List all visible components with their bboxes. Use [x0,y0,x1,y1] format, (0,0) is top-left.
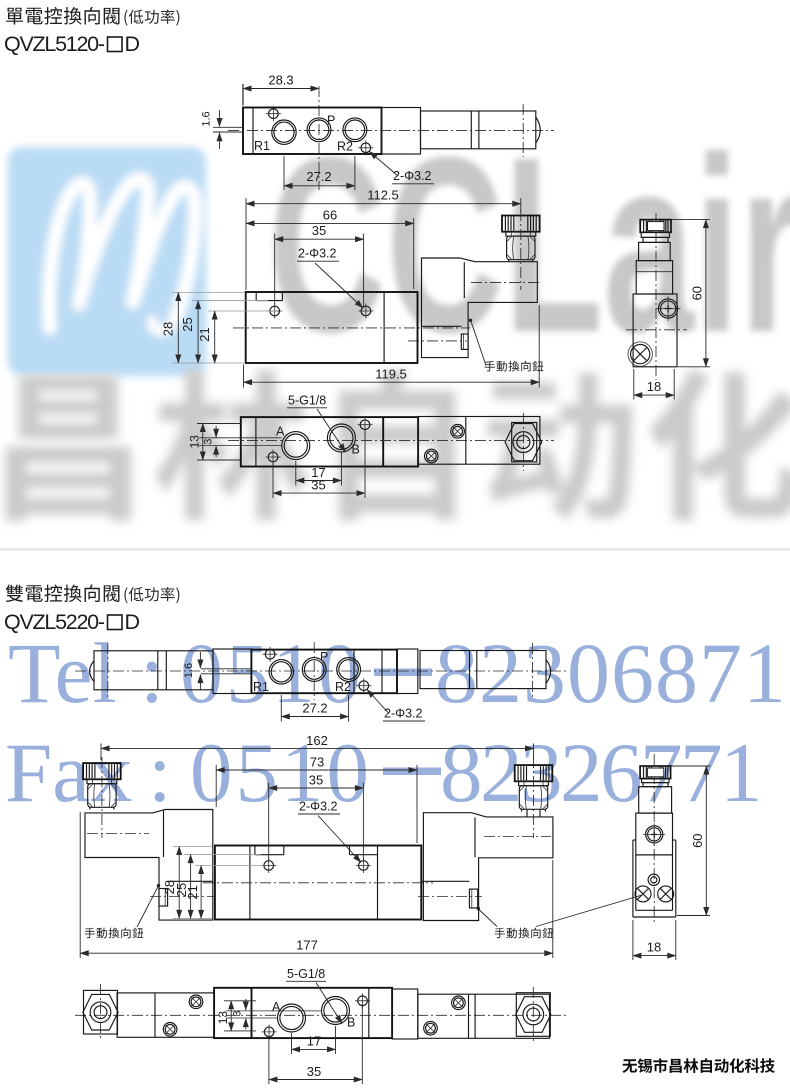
svg-text:5-G1/8: 5-G1/8 [287,967,325,981]
svg-text:17: 17 [307,1034,321,1049]
svg-text:3: 3 [203,439,215,445]
svg-text:27.2: 27.2 [306,169,331,184]
svg-text:B: B [352,443,360,457]
svg-text:R1: R1 [253,680,269,694]
svg-text:162: 162 [306,733,328,748]
svg-text:A: A [276,425,285,439]
svg-text:60: 60 [690,286,705,300]
svg-text:13: 13 [188,435,202,449]
svg-text:27.2: 27.2 [302,701,327,716]
svg-text:3: 3 [232,1010,244,1016]
svg-text:21: 21 [197,327,212,341]
svg-text:R2: R2 [335,680,351,694]
svg-text:P: P [327,114,335,128]
svg-text:35: 35 [309,772,323,787]
svg-text:35: 35 [311,477,325,492]
svg-text:35: 35 [307,1064,321,1079]
svg-text:28: 28 [161,322,176,336]
svg-text:60: 60 [690,833,705,847]
svg-text:18: 18 [647,379,661,394]
svg-text:28.3: 28.3 [268,73,293,88]
svg-text:2-Φ3.2: 2-Φ3.2 [298,247,337,261]
svg-text:119.5: 119.5 [375,366,407,381]
svg-text:18: 18 [647,939,661,954]
svg-text:5-G1/8: 5-G1/8 [288,394,326,408]
svg-text:177: 177 [296,938,318,953]
svg-text:1.6: 1.6 [201,111,213,126]
svg-text:1.6: 1.6 [183,663,195,678]
svg-text:B: B [347,1016,355,1030]
svg-text:R1: R1 [254,139,270,153]
svg-text:25: 25 [180,317,195,331]
svg-text:2-Φ3.2: 2-Φ3.2 [299,800,338,814]
svg-text:2-Φ3.2: 2-Φ3.2 [384,707,423,721]
svg-text:13: 13 [216,1011,230,1025]
svg-text:112.5: 112.5 [367,188,399,203]
svg-text:R2: R2 [337,140,353,154]
svg-text:P: P [320,650,328,664]
svg-text:2-Φ3.2: 2-Φ3.2 [393,169,432,183]
svg-text:35: 35 [312,223,326,238]
svg-text:66: 66 [323,207,337,222]
svg-text:73: 73 [310,754,324,769]
svg-text:21: 21 [185,885,200,899]
svg-text:A: A [272,1000,281,1014]
